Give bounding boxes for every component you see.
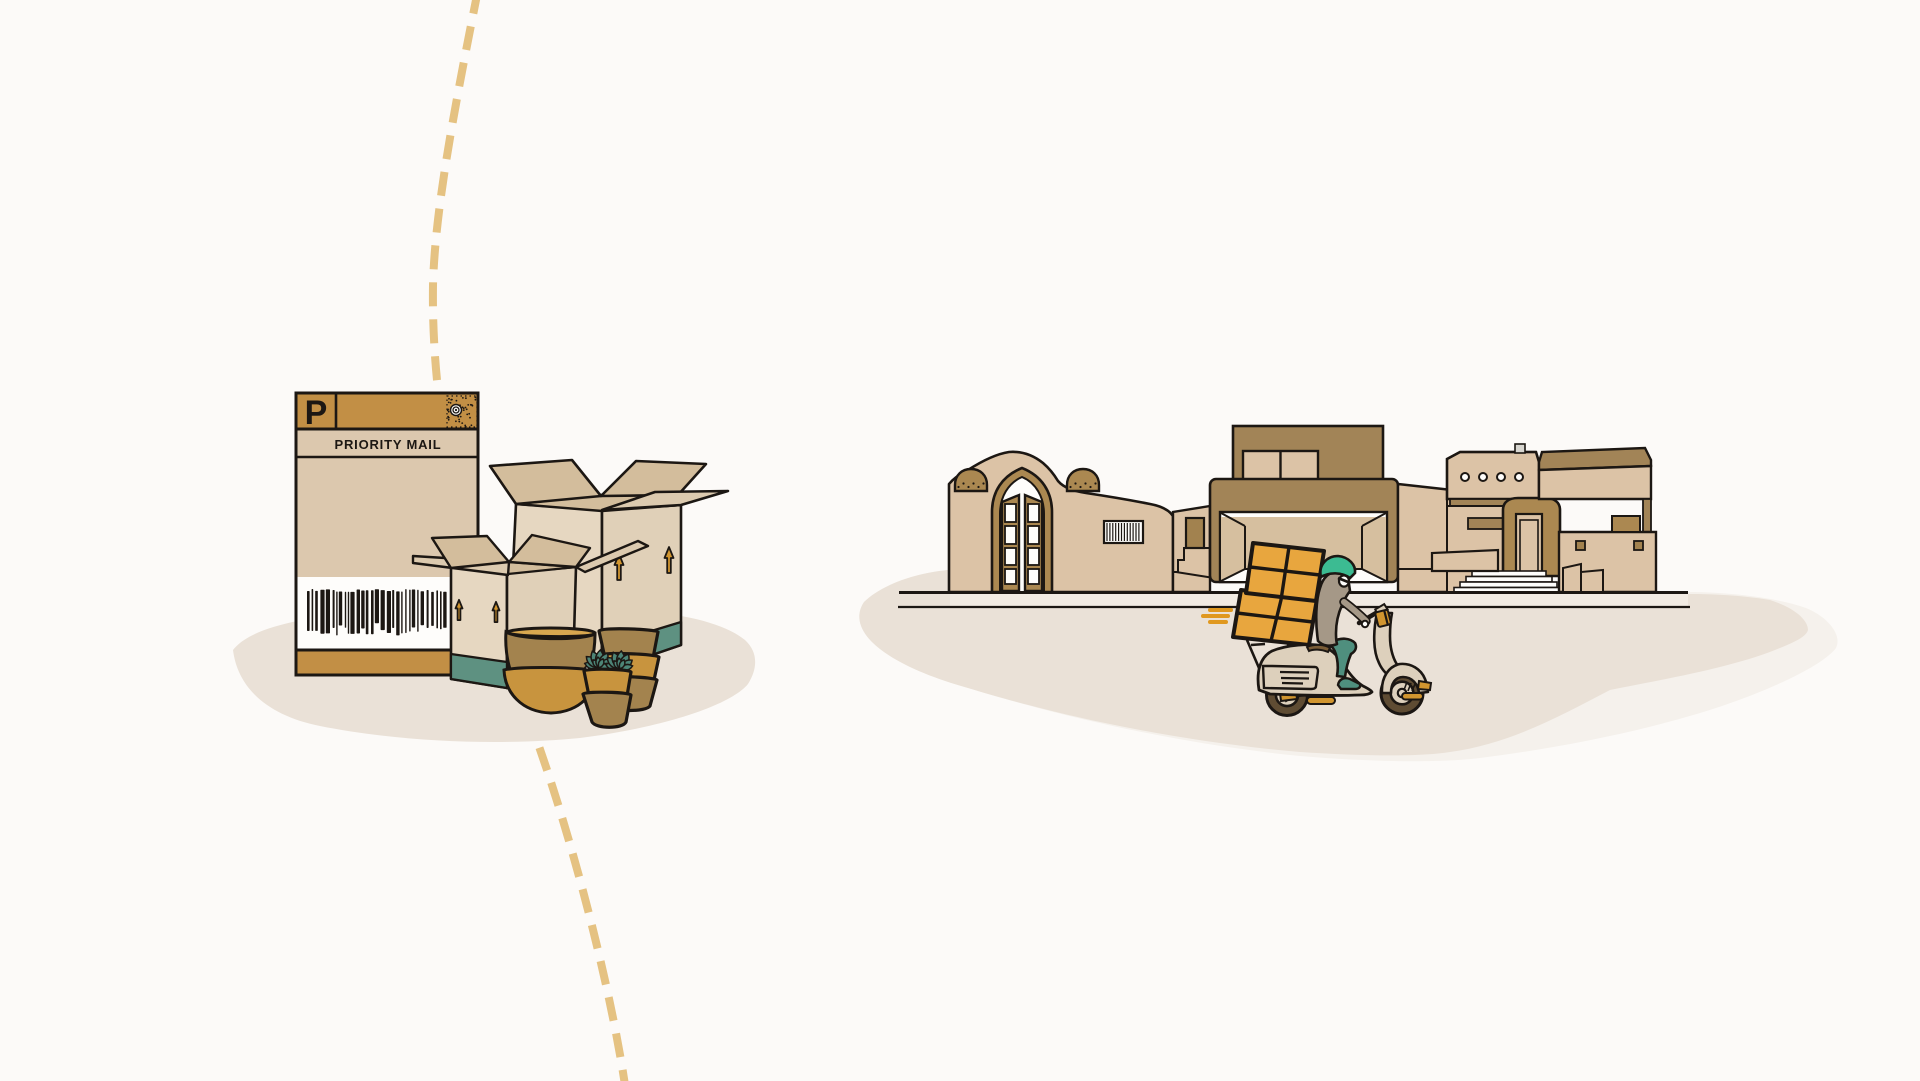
svg-text:PRIORITY MAIL: PRIORITY MAIL bbox=[335, 437, 442, 452]
svg-text:P: P bbox=[305, 394, 328, 432]
